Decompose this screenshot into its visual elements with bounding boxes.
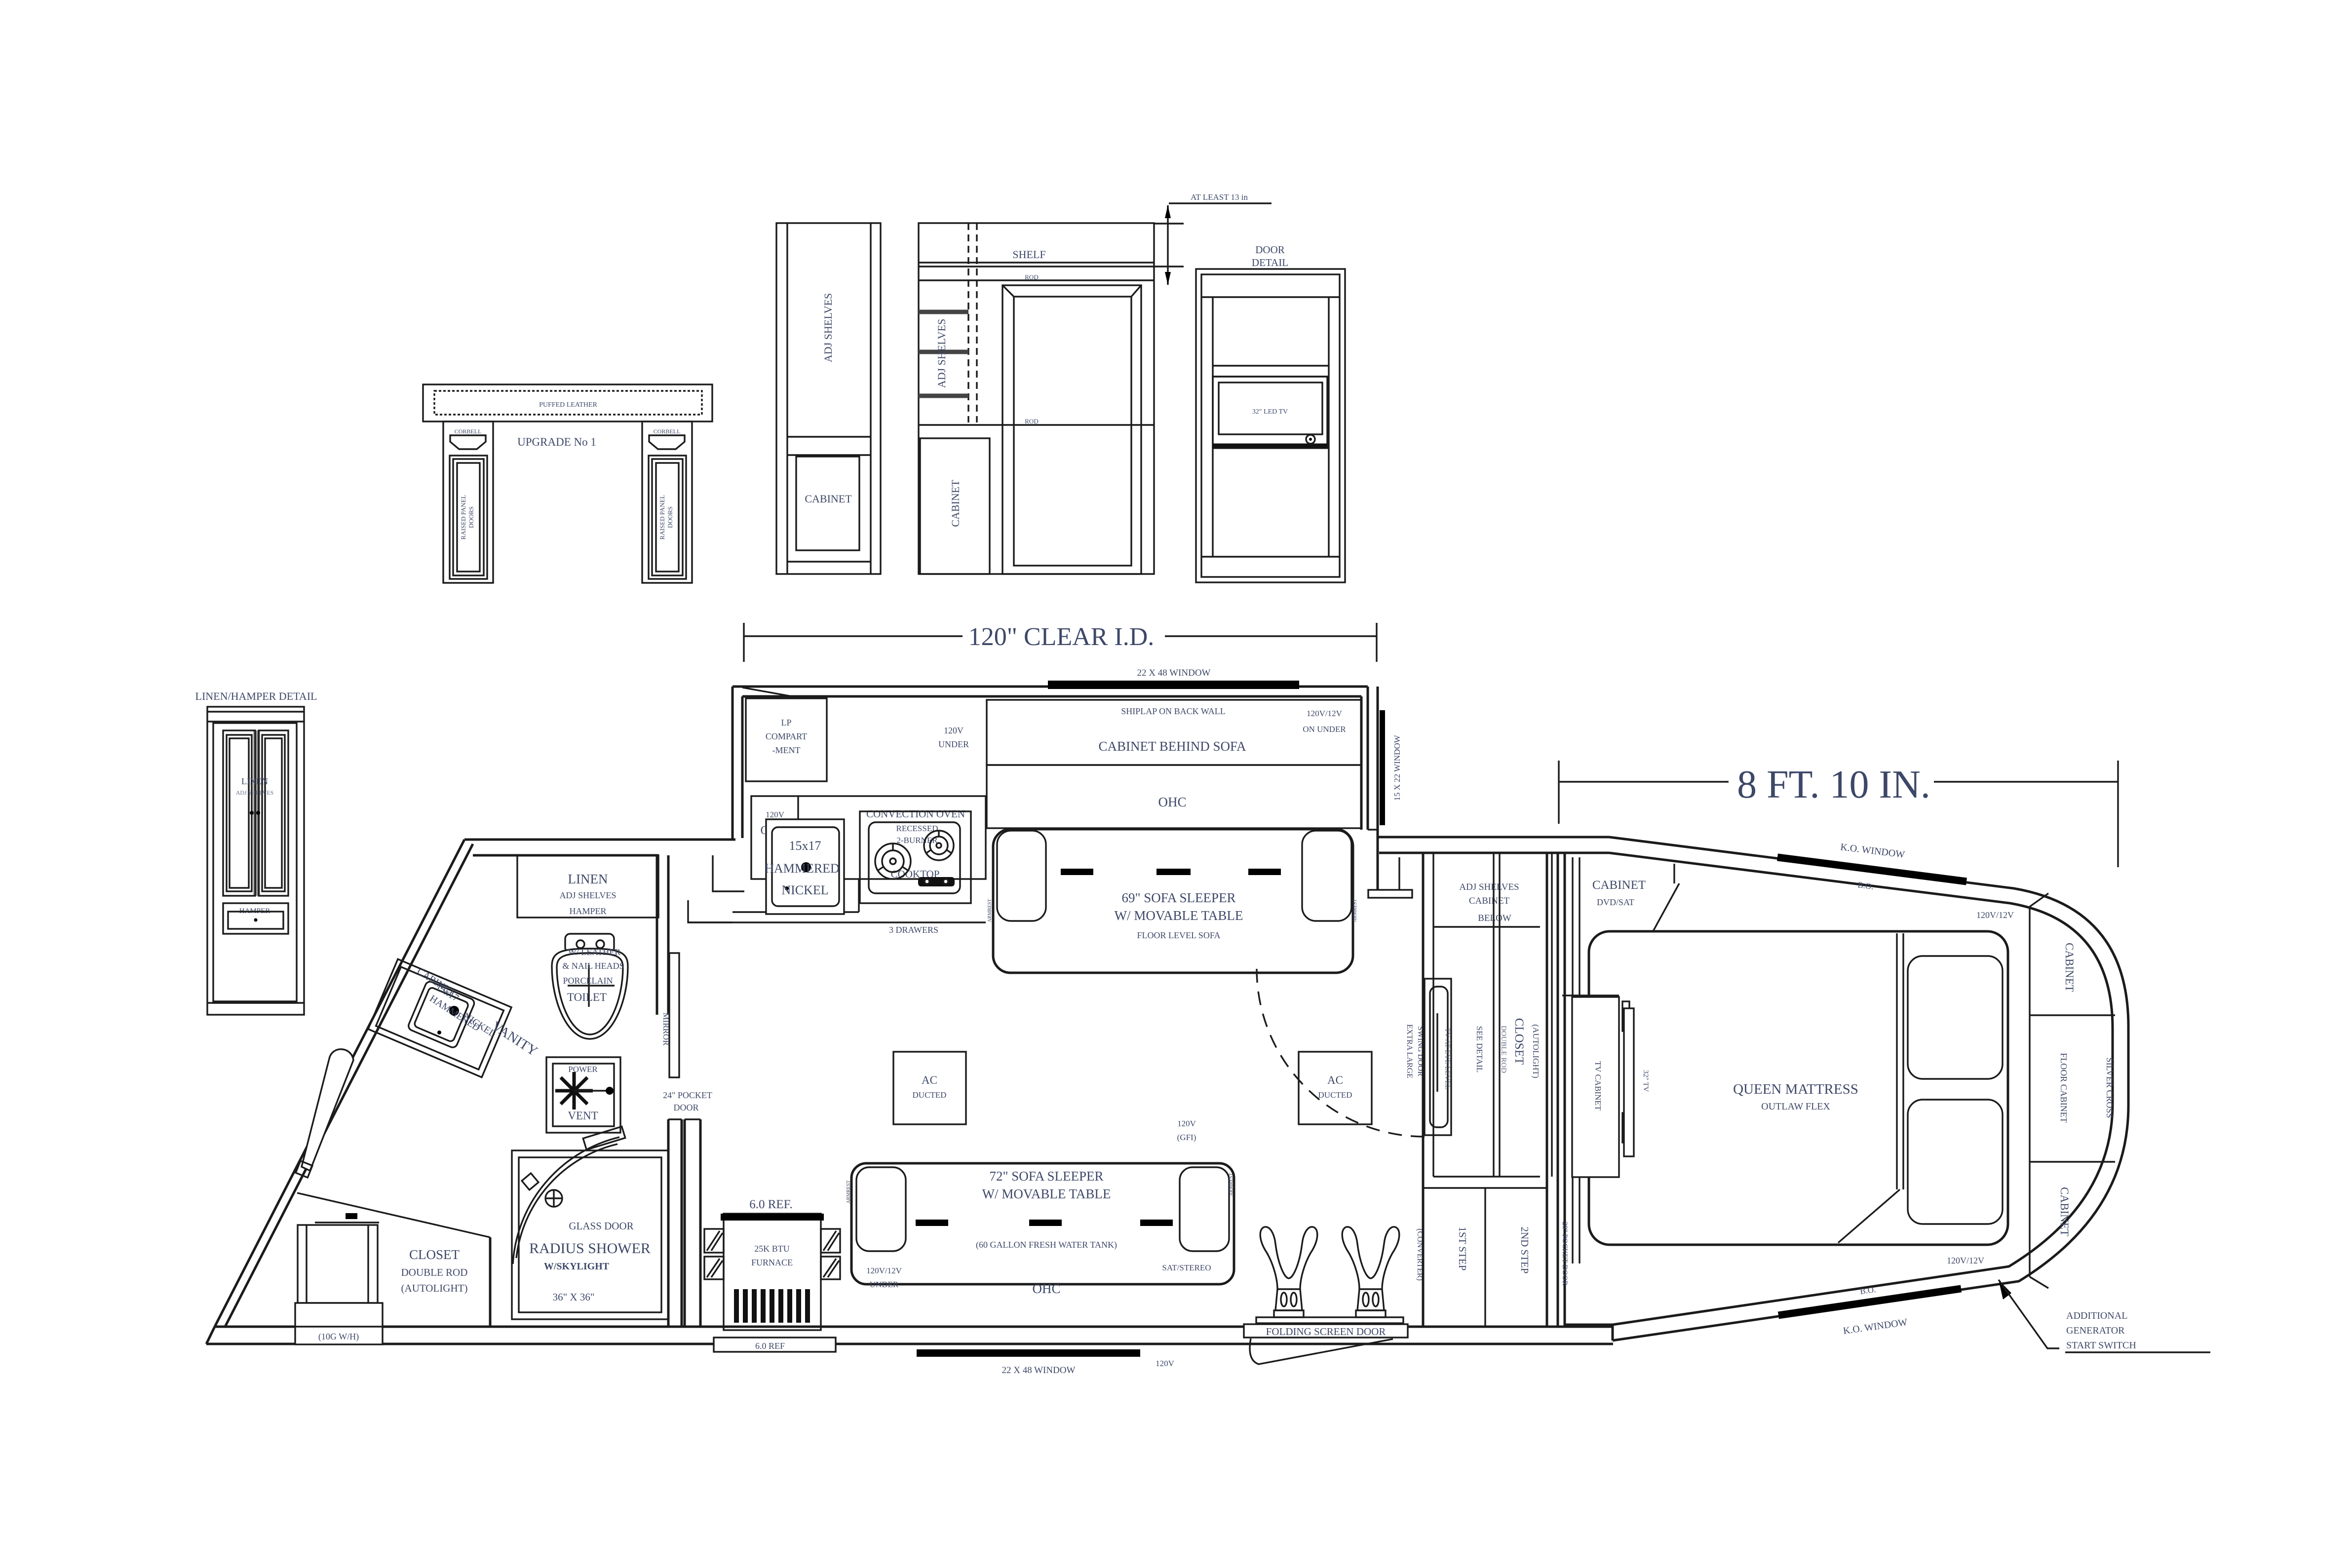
svg-text:B.O.: B.O. [1857, 880, 1874, 891]
svg-text:AC: AC [922, 1074, 937, 1086]
svg-text:& NAIL HEADS: & NAIL HEADS [562, 961, 624, 971]
svg-text:120" CLEAR I.D.: 120" CLEAR I.D. [968, 623, 1155, 651]
svg-text:QUEEN MATTRESS: QUEEN MATTRESS [1733, 1081, 1858, 1097]
svg-text:120V/12V: 120V/12V [866, 1266, 902, 1275]
svg-text:120V/12V: 120V/12V [1307, 709, 1343, 718]
svg-text:W/ LEATHER: W/ LEATHER [568, 947, 620, 957]
svg-text:W/ MOVABLE TABLE: W/ MOVABLE TABLE [1115, 908, 1243, 923]
svg-text:120V/12V: 120V/12V [1947, 1256, 1984, 1265]
svg-text:W/ MOVABLE TABLE: W/ MOVABLE TABLE [982, 1186, 1111, 1201]
svg-text:TOILET: TOILET [567, 991, 607, 1003]
svg-text:ADDITIONAL: ADDITIONAL [2066, 1310, 2127, 1321]
svg-text:AC: AC [1327, 1074, 1343, 1086]
svg-text:(60 GALLON FRESH WATER TANK): (60 GALLON FRESH WATER TANK) [976, 1240, 1117, 1250]
svg-text:OHC: OHC [1158, 795, 1186, 809]
svg-text:ROD: ROD [1025, 418, 1038, 425]
svg-text:FOLDING SCREEN DOOR: FOLDING SCREEN DOOR [1266, 1326, 1386, 1338]
svg-text:(AUTOLIGHT): (AUTOLIGHT) [1531, 1024, 1541, 1078]
svg-text:120V: 120V [1156, 1359, 1175, 1368]
svg-text:FLOOR LEVEL SOFA: FLOOR LEVEL SOFA [1137, 930, 1220, 940]
svg-text:OHC: OHC [1032, 1281, 1060, 1296]
svg-text:CORBELL: CORBELL [654, 428, 681, 435]
svg-text:UNDER: UNDER [938, 739, 969, 749]
svg-text:15x17: 15x17 [789, 839, 821, 853]
svg-text:ON UNDER: ON UNDER [1303, 725, 1346, 734]
svg-text:DOUBLE ROD: DOUBLE ROD [1500, 1026, 1507, 1073]
svg-text:(10G W/H): (10G W/H) [318, 1332, 359, 1342]
svg-text:ARMREST: ARMREST [987, 899, 993, 922]
svg-text:(GFI): (GFI) [1177, 1133, 1196, 1142]
svg-text:120V/12V: 120V/12V [1976, 910, 2014, 920]
svg-text:28" POCKET DOOR: 28" POCKET DOOR [1561, 1222, 1569, 1285]
svg-text:32" TV: 32" TV [1642, 1070, 1650, 1092]
svg-text:2ND STEP: 2ND STEP [1519, 1226, 1531, 1273]
svg-text:120V: 120V [766, 810, 785, 819]
svg-text:DOORS: DOORS [467, 506, 475, 528]
svg-text:ARMREST: ARMREST [846, 1180, 851, 1203]
svg-text:DOOR: DOOR [673, 1103, 698, 1112]
svg-text:72" SOFA SLEEPER: 72" SOFA SLEEPER [989, 1169, 1103, 1184]
svg-text:120V: 120V [1177, 1119, 1196, 1128]
svg-text:DOORS: DOORS [666, 506, 674, 528]
svg-text:HAMMERED: HAMMERED [765, 861, 840, 876]
svg-text:EXTRA LARGE: EXTRA LARGE [1405, 1024, 1414, 1078]
svg-text:CLOSET: CLOSET [1512, 1018, 1526, 1065]
svg-text:36" X 36": 36" X 36" [553, 1291, 595, 1303]
svg-text:TV CABINET: TV CABINET [1593, 1061, 1603, 1111]
svg-text:ARMREST: ARMREST [1352, 899, 1358, 922]
svg-text:CONVECTION OVEN: CONVECTION OVEN [866, 808, 965, 820]
svg-text:ARMREST: ARMREST [1229, 1173, 1234, 1196]
svg-text:BELOW: BELOW [1478, 913, 1511, 923]
svg-text:VENT: VENT [568, 1109, 598, 1122]
svg-text:GENERATOR: GENERATOR [2066, 1325, 2125, 1336]
svg-text:TV AT EYE LEVEL: TV AT EYE LEVEL [1443, 1028, 1451, 1090]
svg-text:CABINET: CABINET [2063, 943, 2076, 992]
svg-text:LINEN: LINEN [568, 872, 608, 886]
svg-text:NICKEL: NICKEL [781, 883, 828, 897]
svg-text:LINEN: LINEN [241, 776, 268, 786]
svg-text:ADJ SHELVES: ADJ SHELVES [822, 293, 834, 362]
svg-text:LINEN/HAMPER DETAIL: LINEN/HAMPER DETAIL [195, 690, 317, 702]
svg-text:ADJ SHELVES: ADJ SHELVES [935, 319, 948, 388]
svg-text:ADJ SHELVES: ADJ SHELVES [236, 789, 274, 796]
svg-text:32" LED TV: 32" LED TV [1252, 408, 1288, 416]
svg-text:CABINET: CABINET [805, 493, 852, 505]
svg-text:GLASS DOOR: GLASS DOOR [569, 1220, 633, 1232]
svg-text:CABINET: CABINET [1592, 879, 1646, 892]
svg-text:ADJ SHELVES: ADJ SHELVES [560, 890, 617, 900]
svg-text:DUCTED: DUCTED [913, 1090, 947, 1100]
svg-text:FLOOR CABINET: FLOOR CABINET [2059, 1053, 2069, 1123]
svg-text:COMPART: COMPART [766, 731, 807, 741]
svg-text:PORCELAIN: PORCELAIN [563, 976, 613, 986]
svg-text:START SWITCH: START SWITCH [2066, 1340, 2136, 1351]
svg-text:15 X 22 WINDOW: 15 X 22 WINDOW [1392, 734, 1402, 801]
svg-text:(AUTOLIGHT): (AUTOLIGHT) [401, 1282, 468, 1294]
svg-text:UNDER: UNDER [870, 1280, 899, 1289]
svg-text:DOUBLE ROD: DOUBLE ROD [401, 1266, 468, 1278]
svg-text:6.0 REF.: 6.0 REF. [749, 1198, 793, 1211]
svg-text:CABINET: CABINET [949, 480, 962, 527]
svg-text:SAT/STEREO: SAT/STEREO [1162, 1263, 1211, 1272]
svg-text:1ST STEP: 1ST STEP [1457, 1227, 1468, 1271]
svg-text:8 FT. 10 IN.: 8 FT. 10 IN. [1737, 763, 1930, 806]
svg-text:SILVER CROSS: SILVER CROSS [2105, 1058, 2115, 1118]
svg-text:W/SKYLIGHT: W/SKYLIGHT [544, 1261, 610, 1272]
svg-text:UPGRADE No 1: UPGRADE No 1 [517, 436, 596, 448]
svg-text:6.0 REF: 6.0 REF [755, 1341, 785, 1351]
svg-text:CLOSET: CLOSET [409, 1247, 460, 1262]
svg-text:-MENT: -MENT [772, 745, 801, 755]
svg-text:CABINET BEHIND SOFA: CABINET BEHIND SOFA [1098, 739, 1246, 754]
svg-text:25K BTU: 25K BTU [754, 1244, 790, 1254]
svg-text:OUTLAW FLEX: OUTLAW FLEX [1761, 1101, 1830, 1112]
svg-text:MIRROR: MIRROR [661, 1012, 671, 1046]
svg-text:LP: LP [781, 718, 791, 727]
svg-text:CORBELL: CORBELL [455, 428, 482, 435]
svg-text:SHIPLAP ON BACK WALL: SHIPLAP ON BACK WALL [1121, 706, 1226, 716]
svg-text:DVD/SAT: DVD/SAT [1597, 897, 1634, 907]
svg-text:RADIUS SHOWER: RADIUS SHOWER [529, 1240, 651, 1257]
svg-text:22 X 48 WINDOW: 22 X 48 WINDOW [1002, 1365, 1076, 1376]
svg-text:SEE DETAIL: SEE DETAIL [1475, 1026, 1484, 1072]
svg-text:3 DRAWERS: 3 DRAWERS [889, 925, 938, 935]
svg-text:120V: 120V [944, 726, 964, 735]
svg-text:AT LEAST 13 in: AT LEAST 13 in [1191, 192, 1248, 202]
svg-text:RAISED PANEL: RAISED PANEL [658, 495, 666, 540]
svg-text:RAISED PANEL: RAISED PANEL [460, 495, 467, 540]
svg-text:22 X 48 WINDOW: 22 X 48 WINDOW [1137, 668, 1211, 678]
svg-text:24" POCKET: 24" POCKET [663, 1090, 712, 1100]
svg-text:DETAIL: DETAIL [1252, 257, 1288, 268]
svg-text:CABINET: CABINET [2058, 1187, 2071, 1236]
svg-text:69" SOFA SLEEPER: 69" SOFA SLEEPER [1121, 890, 1235, 905]
svg-text:PUFFED LEATHER: PUFFED LEATHER [539, 401, 598, 409]
svg-text:HAMPER: HAMPER [569, 906, 606, 916]
svg-text:SHELF: SHELF [1012, 248, 1045, 261]
svg-text:ADJ SHELVES: ADJ SHELVES [1459, 882, 1519, 892]
svg-text:CABINET: CABINET [1469, 896, 1510, 906]
svg-text:DUCTED: DUCTED [1318, 1090, 1352, 1100]
svg-text:DOOR: DOOR [1255, 244, 1285, 256]
svg-text:FURNACE: FURNACE [751, 1258, 793, 1267]
